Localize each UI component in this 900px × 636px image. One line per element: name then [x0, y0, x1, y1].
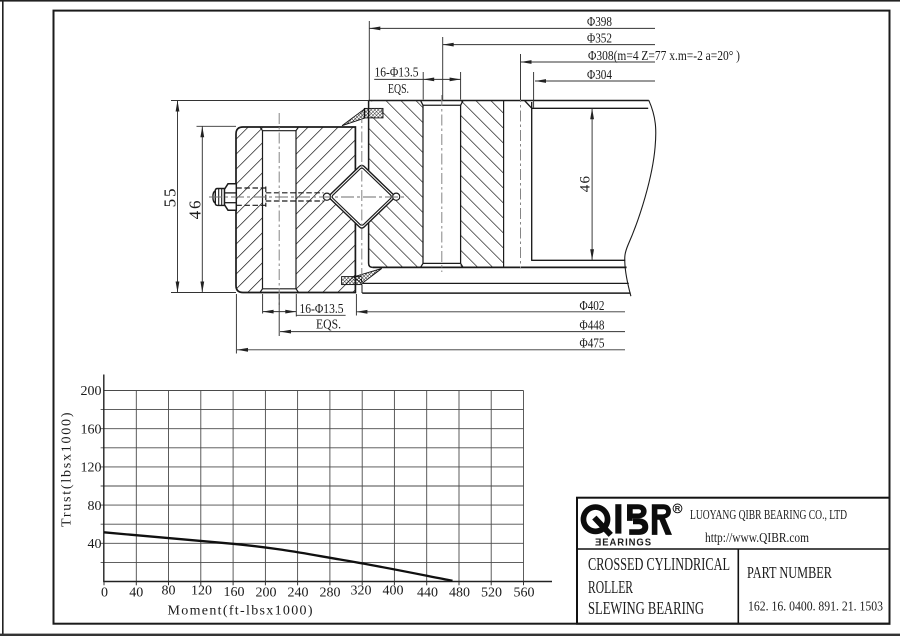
svg-text:Φ402: Φ402 [580, 298, 605, 313]
svg-text:560: 560 [514, 586, 535, 601]
svg-text:16-Φ13.5: 16-Φ13.5 [375, 64, 419, 79]
svg-text:520: 520 [481, 586, 502, 601]
svg-text:440: 440 [417, 585, 438, 600]
svg-text:120: 120 [191, 584, 212, 599]
svg-text:Φ308(m=4 Z=77 x.m=-2 a=20° ): Φ308(m=4 Z=77 x.m=-2 a=20° ) [588, 48, 740, 64]
svg-text:40: 40 [129, 586, 143, 601]
svg-text:80: 80 [88, 499, 102, 514]
svg-text:R: R [675, 504, 681, 513]
svg-text:EQS.: EQS. [316, 316, 341, 331]
svg-text:Φ352: Φ352 [587, 31, 612, 46]
svg-text:http://www.QIBR.com: http://www.QIBR.com [705, 530, 809, 545]
svg-text:PART NUMBER: PART NUMBER [747, 563, 832, 582]
svg-text:46: 46 [185, 199, 204, 220]
svg-text:EQS.: EQS. [388, 81, 409, 96]
svg-text:320: 320 [351, 583, 372, 598]
svg-text:80: 80 [162, 584, 176, 599]
svg-text:160: 160 [81, 422, 102, 437]
svg-text:CROSSED CYLINDRICAL: CROSSED CYLINDRICAL [588, 554, 730, 574]
svg-text:400: 400 [383, 583, 404, 598]
svg-text:480: 480 [449, 586, 470, 601]
svg-text:Φ398: Φ398 [587, 14, 612, 29]
svg-text:0: 0 [101, 586, 108, 601]
svg-text:ROLLER: ROLLER [588, 577, 633, 597]
svg-text:40: 40 [88, 537, 102, 552]
svg-text:ƎEARINGS: ƎEARINGS [595, 538, 652, 549]
svg-text:160: 160 [224, 585, 245, 600]
svg-text:LUOYANG QIBR BEARING CO., LTD: LUOYANG QIBR BEARING CO., LTD [690, 507, 847, 522]
svg-text:SLEWING BEARING: SLEWING BEARING [588, 598, 704, 618]
svg-text:55: 55 [161, 187, 180, 208]
svg-text:280: 280 [320, 586, 341, 601]
svg-text:46: 46 [578, 175, 594, 192]
svg-text:200: 200 [256, 586, 277, 601]
svg-text:240: 240 [288, 586, 309, 601]
svg-text:Φ475: Φ475 [580, 336, 605, 351]
svg-text:120: 120 [81, 461, 102, 476]
svg-text:Moment(ft-lbsx1000): Moment(ft-lbsx1000) [168, 603, 313, 618]
svg-text:162. 16. 0400. 891. 21. 1503: 162. 16. 0400. 891. 21. 1503 [748, 599, 883, 614]
svg-text:200: 200 [81, 384, 102, 399]
svg-text:Φ304: Φ304 [587, 67, 612, 82]
svg-text:Φ448: Φ448 [580, 317, 605, 332]
svg-text:16-Φ13.5: 16-Φ13.5 [300, 301, 344, 316]
